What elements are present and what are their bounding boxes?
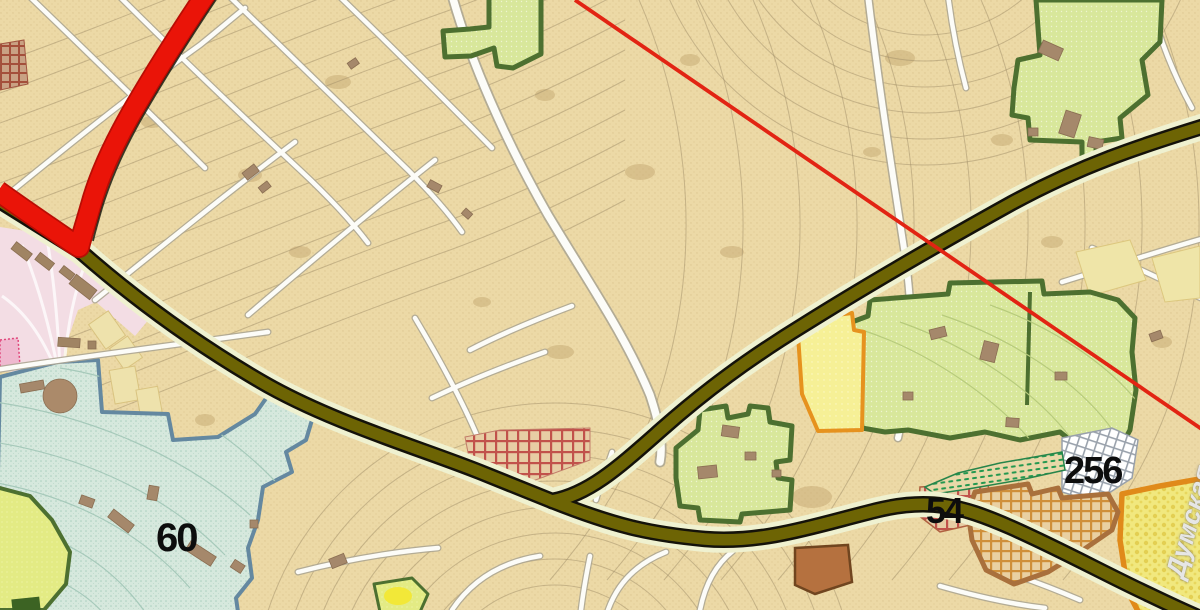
map-canvas: 60 54 256 Думская — [0, 0, 1200, 610]
zone-label-60: 60 — [156, 518, 197, 558]
zone-label-54: 54 — [926, 493, 962, 529]
yellow-blob — [384, 587, 412, 605]
zone-label-256: 256 — [1064, 452, 1121, 490]
